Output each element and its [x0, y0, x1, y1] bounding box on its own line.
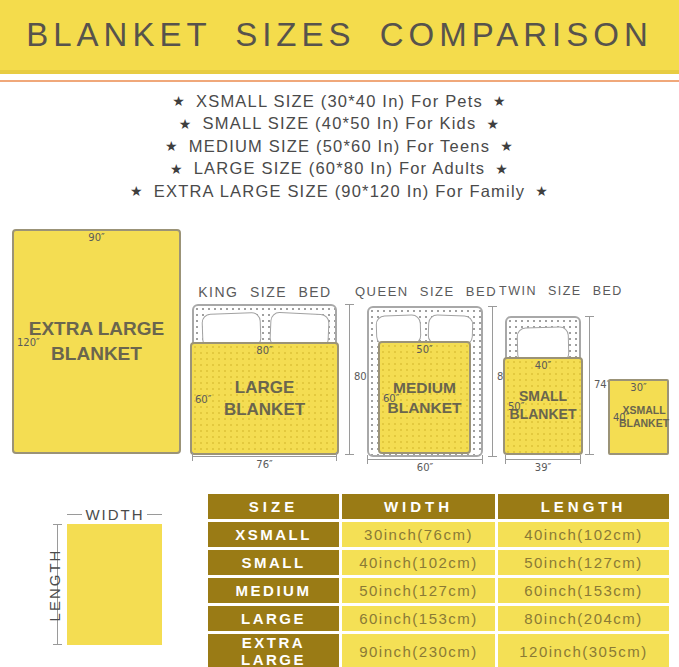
- star-icon: ★: [495, 161, 509, 177]
- extra-large-blanket-illustration: 90″ 120″ EXTRA LARGE BLANKET: [12, 229, 181, 454]
- dimension-line: [367, 459, 483, 460]
- page-title: BLANKET SIZES COMPARISON: [26, 16, 653, 54]
- table-cell: 120inch(305cm): [498, 634, 669, 667]
- size-list-item: ★MEDIUM SIZE (50*60 In) For Teens★: [0, 135, 679, 158]
- column-header: SIZE: [208, 494, 339, 519]
- dimension-label: 40″: [505, 360, 581, 371]
- size-list-text: LARGE SIZE (60*80 In) For Adults: [194, 159, 486, 178]
- table-cell: 60inch(153cm): [342, 606, 495, 631]
- divider-line: [0, 80, 679, 82]
- size-list-item: ★EXTRA LARGE SIZE (90*120 In) For Family…: [0, 180, 679, 203]
- star-icon: ★: [500, 138, 514, 154]
- dimension-line: [492, 306, 493, 457]
- dimension-line: [349, 304, 350, 455]
- dimension-line: [192, 456, 337, 457]
- twin-bed-title: TWIN SIZE BED: [499, 284, 593, 298]
- queen-bed-title: QUEEN SIZE BED: [355, 284, 495, 299]
- star-icon: ★: [172, 93, 186, 109]
- blanket-label: EXTRA LARGE BLANKET: [29, 317, 164, 366]
- dimension-label: 40″: [613, 412, 629, 423]
- xsmall-blanket-illustration: 30″ 40″ XSMALL BLANKET: [608, 379, 669, 455]
- size-list-text: XSMALL SIZE (30*40 In) For Pets: [196, 92, 483, 111]
- table-cell: 50inch(127cm): [498, 550, 669, 575]
- bed-width-label: 76″: [192, 459, 337, 470]
- dimension-label: 80″: [192, 345, 337, 356]
- star-icon: ★: [165, 138, 179, 154]
- star-icon: ★: [179, 116, 193, 132]
- size-list: ★XSMALL SIZE (30*40 In) For Pets★★SMALL …: [0, 90, 679, 203]
- table-cell: 50inch(127cm): [342, 578, 495, 603]
- dimension-label: 60″: [195, 393, 211, 404]
- size-table: SIZEWIDTHLENGTH XSMALL30inch(76cm)40inch…: [205, 491, 672, 667]
- star-icon: ★: [535, 183, 549, 199]
- table-row: MEDIUM50inch(127cm)60inch(153cm): [208, 578, 669, 603]
- blanket-sizes-infographic: BLANKET SIZES COMPARISON ★XSMALL SIZE (3…: [0, 0, 679, 667]
- dimension-label: 50″: [508, 401, 524, 412]
- dimension-label: 120″: [17, 336, 40, 347]
- large-blanket-illustration: 80″ 60″ LARGE BLANKET: [190, 342, 339, 455]
- size-list-text: SMALL SIZE (40*50 In) For Kids: [203, 114, 477, 133]
- size-list-item: ★SMALL SIZE (40*50 In) For Kids★: [0, 113, 679, 136]
- legend-blanket-swatch: [67, 524, 162, 645]
- row-header: SMALL: [208, 550, 339, 575]
- bed-width-label: 39″: [505, 462, 581, 473]
- table-cell: 30inch(76cm): [342, 522, 495, 547]
- size-list-text: EXTRA LARGE SIZE (90*120 In) For Family: [154, 182, 525, 201]
- small-blanket-illustration: 40″ 50″ SMALL BLANKET: [503, 357, 583, 455]
- dimension-label: 60″: [383, 392, 399, 403]
- row-header: XSMALL: [208, 522, 339, 547]
- dimension-line: [589, 316, 590, 455]
- medium-blanket-illustration: 50″ 60″ MEDIUM BLANKET: [378, 341, 471, 454]
- table-header-row: SIZEWIDTHLENGTH: [208, 494, 669, 519]
- table-cell: 40inch(102cm): [498, 522, 669, 547]
- row-header: LARGE: [208, 606, 339, 631]
- header-banner: BLANKET SIZES COMPARISON: [0, 0, 679, 74]
- table-cell: 90inch(230cm): [342, 634, 495, 667]
- star-icon: ★: [493, 93, 507, 109]
- blanket-label: LARGE BLANKET: [192, 377, 337, 421]
- table-cell: 80inch(204cm): [498, 606, 669, 631]
- length-legend-label: LENGTH: [46, 520, 62, 650]
- dimension-label: 50″: [380, 344, 469, 355]
- dimension-line: [147, 514, 162, 515]
- dimension-label: 90″: [14, 232, 179, 243]
- bed-width-label: 60″: [367, 462, 483, 473]
- table-cell: 60inch(153cm): [498, 578, 669, 603]
- dimension-line: [67, 514, 82, 515]
- size-list-item: ★XSMALL SIZE (30*40 In) For Pets★: [0, 90, 679, 113]
- star-icon: ★: [486, 116, 500, 132]
- size-list-text: MEDIUM SIZE (50*60 In) For Teens: [189, 137, 490, 156]
- star-icon: ★: [130, 183, 144, 199]
- size-list-item: ★LARGE SIZE (60*80 In) For Adults★: [0, 158, 679, 181]
- king-bed-title: KING SIZE BED: [180, 284, 350, 300]
- table-row: EXTRA LARGE90inch(230cm)120inch(305cm): [208, 634, 669, 667]
- column-header: WIDTH: [342, 494, 495, 519]
- row-header: MEDIUM: [208, 578, 339, 603]
- table-cell: 40inch(102cm): [342, 550, 495, 575]
- row-header: EXTRA LARGE: [208, 634, 339, 667]
- table-row: SMALL40inch(102cm)50inch(127cm): [208, 550, 669, 575]
- table-row: LARGE60inch(153cm)80inch(204cm): [208, 606, 669, 631]
- dimension-line: [505, 459, 581, 460]
- dimension-label: 30″: [610, 382, 667, 393]
- table-row: XSMALL30inch(76cm)40inch(102cm): [208, 522, 669, 547]
- column-header: LENGTH: [498, 494, 669, 519]
- star-icon: ★: [170, 161, 184, 177]
